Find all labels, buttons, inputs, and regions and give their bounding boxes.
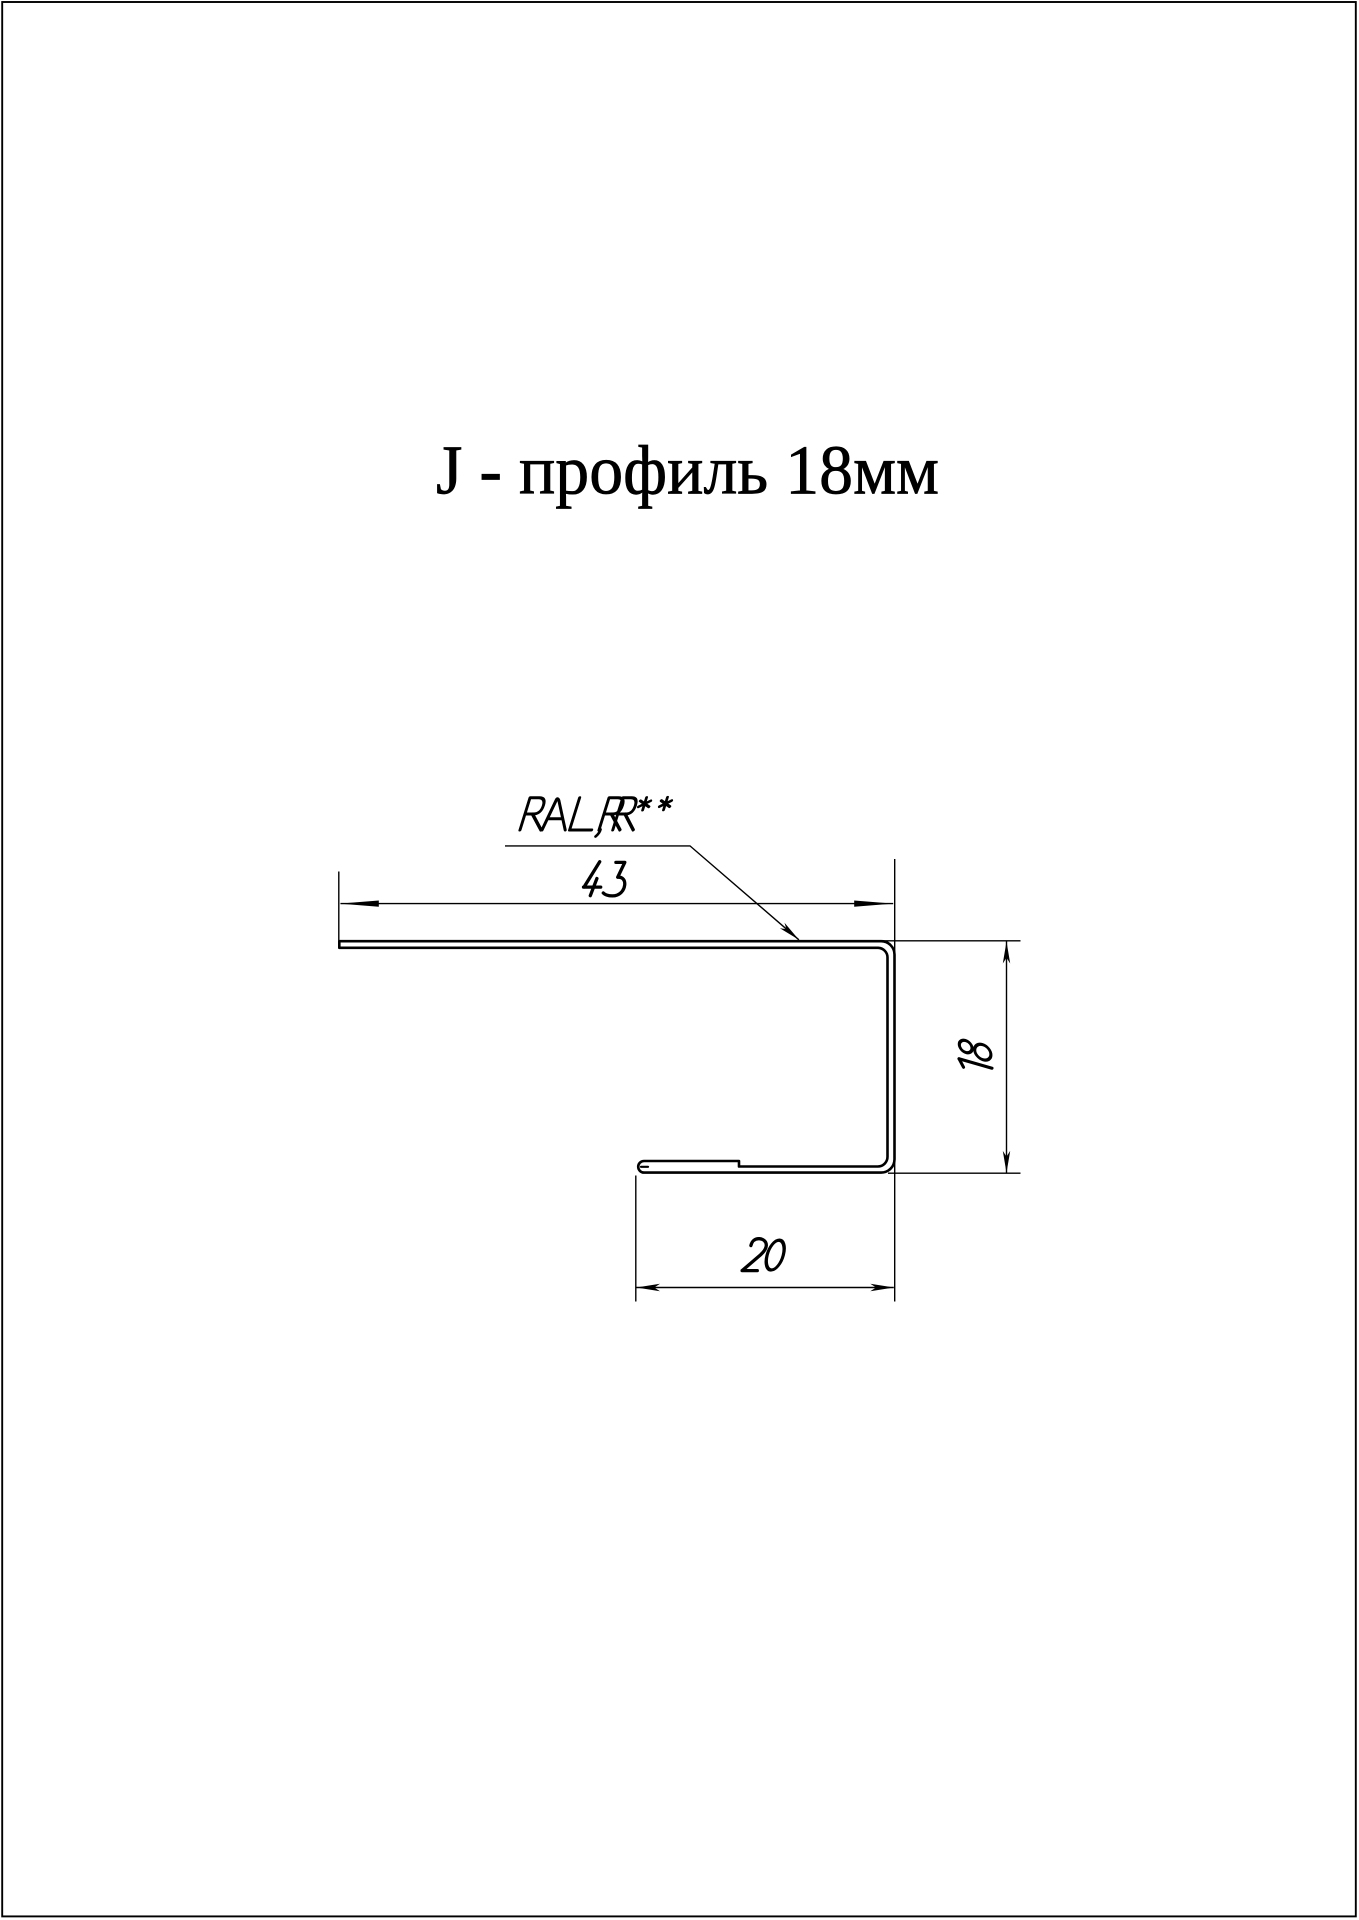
- svg-text:J - профиль 18мм: J - профиль 18мм: [436, 433, 939, 510]
